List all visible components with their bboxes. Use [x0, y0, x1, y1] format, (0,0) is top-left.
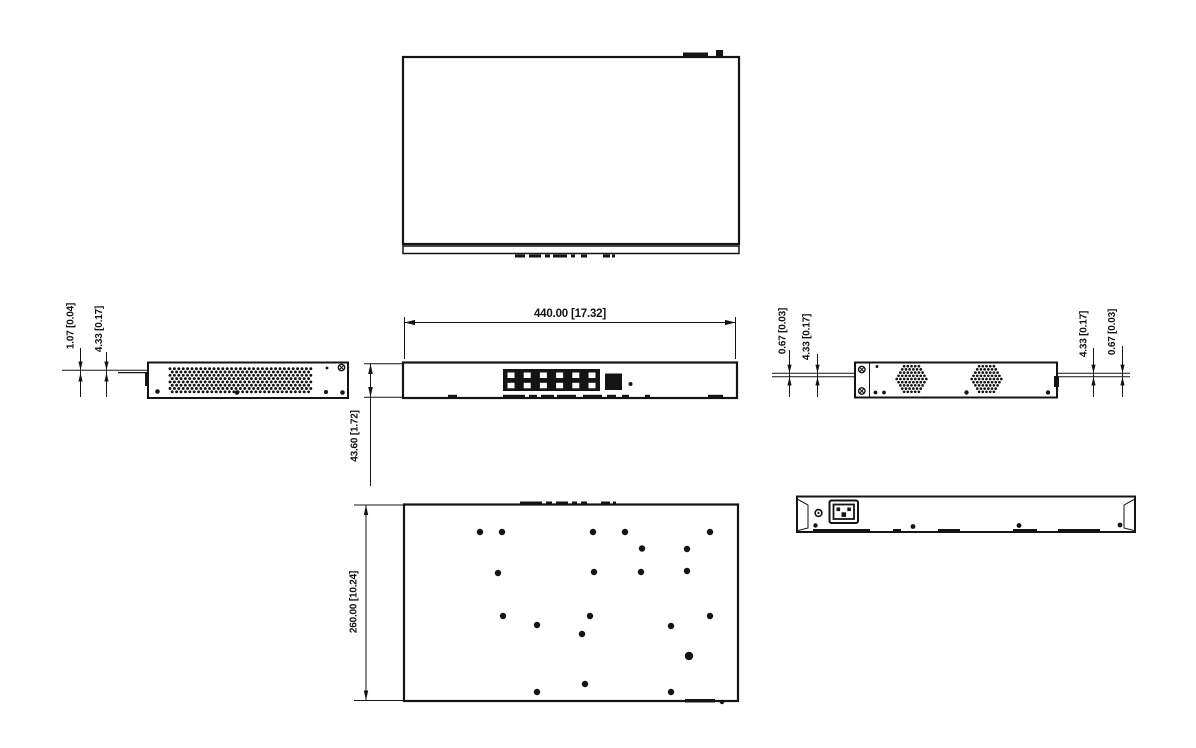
vent-dot: [274, 367, 277, 370]
fan-vent-dot: [901, 374, 904, 377]
vent-dot: [287, 380, 290, 383]
fan-vent-dot: [903, 371, 906, 374]
vent-dot: [257, 367, 260, 370]
fan-vent-dot: [985, 384, 988, 387]
dim-right-front-lip: 0.67 [0.03]: [778, 308, 789, 354]
screw-dot: [324, 390, 328, 394]
vent-dot: [283, 367, 286, 370]
fan-vent-dot: [985, 371, 988, 374]
vent-dot: [213, 387, 216, 390]
vent-dot: [279, 387, 282, 390]
vent-dot: [182, 380, 185, 383]
fan-vent-dot: [989, 390, 992, 393]
vent-dot: [254, 371, 257, 374]
vent-dot: [279, 380, 282, 383]
fan-vent-dot: [998, 374, 1001, 377]
vent-dot: [257, 374, 260, 377]
vent-dot: [169, 367, 172, 370]
vent-dot: [285, 390, 288, 393]
dim-arrow: [787, 377, 791, 386]
vent-dot: [309, 374, 312, 377]
vent-dot: [171, 390, 174, 393]
dim-arrow: [787, 365, 791, 374]
vent-dot: [298, 377, 301, 380]
vent-dot: [290, 390, 293, 393]
vent-dot: [241, 377, 244, 380]
fan-vent-dot: [919, 381, 922, 384]
vent-dot: [303, 377, 306, 380]
vent-dot: [283, 387, 286, 390]
front-edge-tick: [448, 395, 457, 398]
fan-vent-dot: [978, 378, 981, 381]
vent-dot: [272, 384, 275, 387]
vent-dot: [206, 377, 209, 380]
vent-dot: [268, 371, 271, 374]
vent-dot: [261, 367, 264, 370]
vent-dot: [252, 380, 255, 383]
top-port-tick: [515, 255, 525, 258]
screw-dot: [874, 391, 878, 395]
vent-dot: [188, 390, 191, 393]
vent-dot: [294, 377, 297, 380]
rj45-port-window: [572, 383, 579, 389]
screw-dot: [1046, 390, 1050, 394]
fan-vent-dot: [987, 368, 990, 371]
front-edge-tick: [557, 395, 576, 398]
fan-vent-dot: [991, 387, 994, 390]
vent-dot: [182, 387, 185, 390]
vent-dot: [296, 374, 299, 377]
vent-dot: [206, 390, 209, 393]
mounting-hole: [668, 623, 674, 629]
vent-dot: [173, 374, 176, 377]
fan-vent-dot: [897, 381, 900, 384]
vent-dot: [259, 384, 262, 387]
dim-arrow: [78, 373, 82, 382]
fan-vent-dot: [989, 371, 992, 374]
vent-dot: [246, 371, 249, 374]
fan-vent-dot: [919, 374, 922, 377]
vent-dot: [180, 390, 183, 393]
bottom-port-tick: [572, 502, 577, 505]
vent-dot: [237, 377, 240, 380]
bottom-view: [404, 502, 738, 705]
mounting-hole: [495, 570, 501, 576]
dim-right-rear-ear: 4.33 [0.17]: [1079, 311, 1090, 357]
fan-vent-dot: [914, 378, 917, 381]
vent-dot: [243, 367, 246, 370]
front-edge-tick: [583, 395, 602, 398]
vent-dot: [248, 367, 251, 370]
vent-dot: [307, 377, 310, 380]
rj45-port-window: [540, 383, 547, 389]
rear-screw-dot: [911, 524, 916, 529]
vent-dot: [232, 377, 235, 380]
vent-dot: [177, 387, 180, 390]
front-edge-tick: [645, 395, 650, 398]
vent-dot: [235, 387, 238, 390]
fan-vent-dot: [905, 368, 908, 371]
fan-vent-dot: [993, 378, 996, 381]
dim-right-rear-group: 4.33 [0.17] 0.67 [0.03]: [1079, 309, 1125, 397]
bottom-port-tick: [581, 502, 587, 505]
right-side-view: [772, 363, 1130, 398]
vent-dot: [309, 387, 312, 390]
dim-arrow: [364, 691, 368, 701]
vent-dot: [217, 380, 220, 383]
vent-dot: [193, 384, 196, 387]
vent-dot: [195, 374, 198, 377]
fan-vent-dot: [918, 371, 921, 374]
vent-dot: [248, 380, 251, 383]
vent-dot: [268, 377, 271, 380]
bottom-edge-bar: [685, 699, 715, 703]
vent-dot: [276, 377, 279, 380]
fan-vent-dot: [903, 365, 906, 368]
dim-arrow: [405, 320, 416, 325]
vent-dot: [215, 384, 218, 387]
vent-dot: [226, 387, 229, 390]
vent-dot: [307, 390, 310, 393]
fan-vent-dot: [978, 384, 981, 387]
fan-vent-dot: [978, 365, 981, 368]
vent-dot: [226, 374, 229, 377]
fan-vent-dot: [921, 378, 924, 381]
vent-dot: [186, 374, 189, 377]
fan-vent-dot: [908, 381, 911, 384]
vent-dot: [303, 390, 306, 393]
vent-dot: [215, 371, 218, 374]
vent-dot: [197, 371, 200, 374]
fan-vent-dot: [912, 381, 915, 384]
dim-arrow: [815, 365, 819, 374]
fan-vent-dot: [906, 378, 909, 381]
rear-screw-dot: [813, 523, 817, 527]
mounting-hole: [638, 569, 644, 575]
fan-vent-dot: [918, 378, 921, 381]
vent-dot: [197, 390, 200, 393]
vent-dot: [274, 374, 277, 377]
vent-dot: [199, 367, 202, 370]
power-inlet-pin-ground: [842, 512, 847, 517]
fan-vent-dot: [993, 371, 996, 374]
vent-dot: [279, 374, 282, 377]
mounting-hole: [582, 681, 588, 687]
dim-front-height: 43.60 [1.72]: [350, 410, 361, 462]
vent-dot: [305, 380, 308, 383]
fan-vent-dot: [996, 384, 999, 387]
vent-dot: [305, 374, 308, 377]
vent-dot: [246, 377, 249, 380]
dim-arrow: [1120, 377, 1124, 386]
vent-dot: [219, 390, 222, 393]
vent-dot: [219, 371, 222, 374]
vent-dot: [276, 371, 279, 374]
vent-dot: [248, 374, 251, 377]
vent-dot: [309, 367, 312, 370]
vent-dot: [180, 371, 183, 374]
vent-dot: [263, 384, 266, 387]
vent-dot: [259, 377, 262, 380]
vent-dot: [235, 374, 238, 377]
mounting-hole: [590, 529, 596, 535]
mounting-hole: [684, 546, 690, 552]
fan-vent-dot: [919, 368, 922, 371]
fan-vent-dot: [980, 381, 983, 384]
mounting-hole: [707, 529, 713, 535]
vent-dot: [250, 377, 253, 380]
rear-screw-dot: [1118, 523, 1123, 528]
vent-dot: [230, 374, 233, 377]
fan-vent-dot: [976, 368, 979, 371]
vent-dot: [294, 371, 297, 374]
fan-vent-dot: [987, 387, 990, 390]
rear-edge-tick: [893, 529, 901, 531]
vent-dot: [206, 384, 209, 387]
fan-vent-dot: [921, 371, 924, 374]
vent-dot: [188, 384, 191, 387]
top-port-tick: [612, 255, 615, 258]
fan-vent-dot: [914, 384, 917, 387]
vent-dot: [221, 387, 224, 390]
vent-dot: [248, 387, 251, 390]
top-view-outline: [403, 57, 739, 244]
vent-dot: [276, 390, 279, 393]
top-view-button-bump: [716, 50, 723, 57]
fan-vent-dot: [994, 374, 997, 377]
top-view-grounding-lug: [683, 53, 708, 58]
vent-dot: [290, 384, 293, 387]
vent-dot: [202, 377, 205, 380]
fan-vent-dot: [914, 365, 917, 368]
rear-ground-screw-center: [817, 512, 819, 514]
fan-vent-dot: [998, 381, 1001, 384]
vent-dot: [217, 367, 220, 370]
vent-dot: [191, 374, 194, 377]
mounting-hole: [534, 622, 540, 628]
fan-vent-dot: [899, 371, 902, 374]
fan-vent-dot: [983, 374, 986, 377]
front-port-block: [503, 369, 600, 391]
vent-dot: [301, 380, 304, 383]
fan-vent-dot: [993, 390, 996, 393]
front-led-dot: [629, 382, 633, 386]
vent-dot: [261, 374, 264, 377]
vent-dot: [232, 384, 235, 387]
vent-dot: [252, 374, 255, 377]
vent-dot: [281, 384, 284, 387]
vent-dot: [232, 371, 235, 374]
vent-dot: [204, 387, 207, 390]
fan-vent-dot: [983, 381, 986, 384]
screw-dot: [155, 389, 160, 394]
vent-dot: [184, 377, 187, 380]
fan-vent-dot: [910, 378, 913, 381]
screw-dot: [326, 367, 329, 370]
vent-dot: [285, 377, 288, 380]
vent-dot: [226, 367, 229, 370]
vent-dot: [252, 387, 255, 390]
vent-dot: [215, 377, 218, 380]
vent-dot: [287, 367, 290, 370]
vent-dot: [184, 384, 187, 387]
fan-vent-dot: [981, 371, 984, 374]
vent-dot: [171, 377, 174, 380]
rj45-port-window: [540, 373, 547, 379]
dim-arrow: [368, 387, 373, 397]
vent-dot: [184, 390, 187, 393]
vent-dot: [188, 377, 191, 380]
fan-vent-dot: [916, 387, 919, 390]
fan-vent-dot: [910, 384, 913, 387]
vent-dot: [270, 380, 273, 383]
vent-dot: [290, 377, 293, 380]
fan-vent-dot: [906, 365, 909, 368]
vent-dot: [186, 367, 189, 370]
bottom-port-tick: [601, 502, 610, 505]
fan-vent-dot: [996, 371, 999, 374]
power-inlet-pin-right: [847, 508, 851, 512]
front-uplink-port: [605, 374, 622, 391]
vent-dot: [186, 387, 189, 390]
vent-dot: [285, 371, 288, 374]
bottom-port-tick: [520, 502, 542, 505]
vent-dot: [202, 371, 205, 374]
fan-vent-dot: [901, 368, 904, 371]
vent-dot: [274, 380, 277, 383]
fan-vent-dot: [991, 368, 994, 371]
vent-dot: [191, 387, 194, 390]
vent-dot: [287, 387, 290, 390]
vent-dot: [173, 380, 176, 383]
fan-vent-dot: [918, 384, 921, 387]
front-view: [403, 363, 737, 399]
rear-view: [797, 497, 1135, 533]
vent-dot: [204, 367, 207, 370]
rear-power-inlet: [830, 501, 859, 524]
vent-dot: [199, 380, 202, 383]
dim-right-front-group: 0.67 [0.03] 4.33 [0.17]: [778, 308, 820, 397]
vent-dot: [208, 374, 211, 377]
fan-vent-dot: [912, 387, 915, 390]
mounting-hole: [707, 613, 713, 619]
vent-dot: [250, 384, 253, 387]
fan-vent-dot: [985, 365, 988, 368]
rj45-port-window: [589, 383, 596, 389]
fan-vent-dot: [903, 390, 906, 393]
rj45-port-window: [572, 373, 579, 379]
vent-dot: [195, 367, 198, 370]
vent-dot: [250, 371, 253, 374]
vent-dot: [268, 390, 271, 393]
vent-dot: [246, 384, 249, 387]
vent-dot: [239, 374, 242, 377]
vent-dot: [215, 390, 218, 393]
top-port-tick: [553, 255, 567, 258]
mounting-hole: [587, 613, 593, 619]
vent-dot: [298, 371, 301, 374]
dim-arrow: [78, 362, 82, 371]
vent-dot: [252, 367, 255, 370]
drawing-page: 440.00 [17.32] 43.60 [1.72] 1.07 [0.04] …: [0, 0, 1196, 748]
fan-vent-dot: [923, 374, 926, 377]
vent-dot: [210, 371, 213, 374]
vent-dot: [175, 371, 178, 374]
vent-dot: [307, 384, 310, 387]
mounting-hole: [639, 545, 645, 551]
vent-dot: [213, 380, 216, 383]
fan-vent-dot: [918, 365, 921, 368]
vent-dot: [294, 390, 297, 393]
fan-vent-dot: [989, 378, 992, 381]
screw-dot: [876, 365, 879, 368]
dim-depth-group: 260.00 [10.24]: [349, 505, 404, 701]
vent-dot: [239, 380, 242, 383]
vent-dot: [246, 390, 249, 393]
vent-dot: [228, 390, 231, 393]
vent-dot: [305, 367, 308, 370]
fan-vent-dot: [985, 378, 988, 381]
vent-dot: [193, 377, 196, 380]
vent-dot: [301, 387, 304, 390]
fan-vent-dot: [980, 374, 983, 377]
rj45-port-window: [508, 373, 515, 379]
vent-dot: [175, 384, 178, 387]
fan-vent-dot: [897, 374, 900, 377]
vent-dot: [175, 390, 178, 393]
bottom-edge-dot: [720, 700, 724, 704]
right-side-rear-tab: [1054, 376, 1059, 387]
fan-vent-dot: [981, 390, 984, 393]
fan-vent-dot: [905, 387, 908, 390]
mounting-hole: [685, 652, 693, 660]
dim-front-height-group: 43.60 [1.72]: [350, 364, 403, 486]
vent-dot: [235, 380, 238, 383]
rj45-port-window: [524, 373, 531, 379]
top-port-tick: [545, 255, 550, 258]
vent-dot: [182, 374, 185, 377]
fan-vent-dot: [994, 387, 997, 390]
dim-right-front-ear: 4.33 [0.17]: [802, 314, 813, 360]
rj45-port-window: [556, 383, 563, 389]
left-side-front-tab: [145, 372, 149, 386]
vent-dot: [208, 380, 211, 383]
vent-dot: [272, 377, 275, 380]
fan-vent-dot: [908, 374, 911, 377]
top-port-tick: [571, 255, 575, 258]
vent-dot: [241, 384, 244, 387]
fan-vent-dot: [919, 387, 922, 390]
mounting-hole: [534, 689, 540, 695]
rear-edge-tick: [1058, 529, 1100, 531]
dim-arrow: [725, 320, 736, 325]
fan-vent-dot: [910, 365, 913, 368]
bottom-port-tick: [556, 502, 568, 505]
mounting-hole: [500, 613, 506, 619]
vent-dot: [298, 384, 301, 387]
vent-dot: [219, 384, 222, 387]
fan-vent-dot: [974, 371, 977, 374]
fan-vent-dot: [925, 378, 928, 381]
fan-vent-dot: [976, 374, 979, 377]
fan-vent-dot: [899, 384, 902, 387]
vent-dot: [301, 367, 304, 370]
vent-dot: [254, 384, 257, 387]
rj45-port-window: [508, 383, 515, 389]
vent-dot: [219, 377, 222, 380]
vent-dot: [296, 367, 299, 370]
vent-dot: [241, 371, 244, 374]
